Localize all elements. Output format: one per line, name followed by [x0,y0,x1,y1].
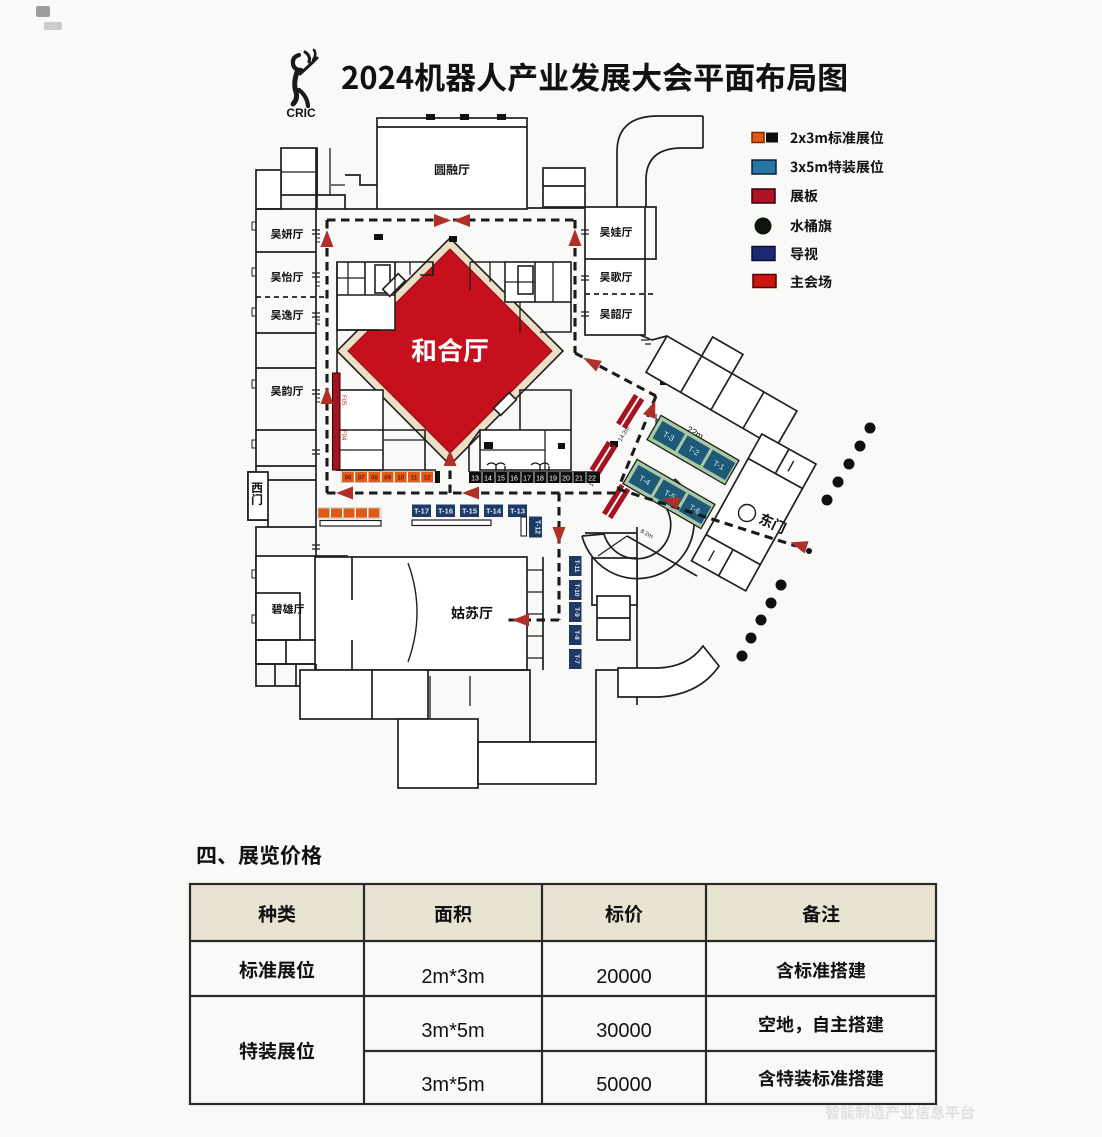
svg-text:T-15: T-15 [462,507,477,516]
svg-text:T-16: T-16 [438,507,453,516]
svg-text:22: 22 [588,476,596,483]
svg-text:08: 08 [371,476,378,482]
svg-text:20: 20 [562,476,570,483]
svg-text:T-11: T-11 [573,560,580,573]
svg-text:18: 18 [536,476,544,483]
svg-text:T-10: T-10 [573,583,580,596]
svg-text:50000: 50000 [596,1074,652,1096]
svg-text:14: 14 [484,476,492,483]
svg-text:15: 15 [497,476,505,483]
svg-text:T-7: T-7 [573,654,580,664]
svg-text:19: 19 [549,476,557,483]
svg-text:21: 21 [575,476,583,483]
svg-text:T-17: T-17 [414,507,429,516]
svg-text:06: 06 [345,476,352,482]
svg-text:17: 17 [523,476,531,483]
svg-text:F04: F04 [340,430,346,441]
svg-text:T-13: T-13 [510,507,525,516]
svg-text:T-14: T-14 [486,507,502,516]
svg-text:CRIC: CRIC [286,106,316,120]
svg-text:10: 10 [397,476,404,482]
svg-text:3m*5m: 3m*5m [421,1020,484,1042]
svg-text:3m*5m: 3m*5m [421,1074,484,1096]
svg-text:T-9: T-9 [573,607,580,617]
svg-text:30000: 30000 [596,1020,652,1042]
svg-text:2m*3m: 2m*3m [421,966,484,988]
svg-text:12: 12 [424,476,431,482]
svg-text:09: 09 [384,476,391,482]
svg-text:13: 13 [471,476,479,483]
svg-text:F05: F05 [340,395,346,406]
svg-text:11: 11 [411,476,418,482]
svg-text:07: 07 [358,476,365,482]
svg-text:T-12: T-12 [534,520,541,534]
svg-text:16: 16 [510,476,518,483]
svg-text:20000: 20000 [596,966,652,988]
svg-text:T-8: T-8 [573,630,580,640]
